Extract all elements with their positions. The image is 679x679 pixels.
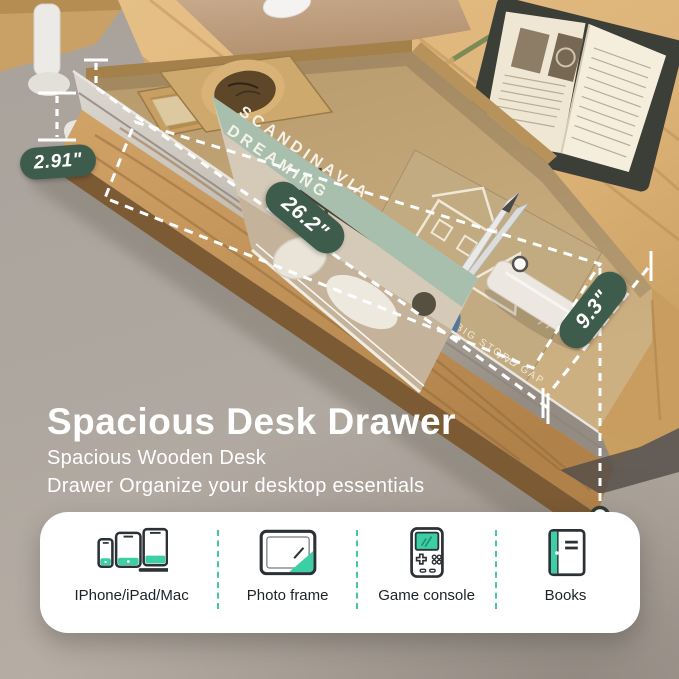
- feature-books-label: Books: [545, 587, 587, 604]
- headline-block: Spacious Desk Drawer Spacious Wooden Des…: [47, 402, 456, 499]
- game-console-icon: [398, 524, 456, 582]
- height-measurement-badge: 2.91": [19, 143, 97, 180]
- feature-game-console-label: Game console: [378, 587, 475, 604]
- feature-devices: IPhone/iPad/Mac: [46, 524, 217, 623]
- books-icon: [537, 524, 595, 582]
- feature-photo-frame: Photo frame: [219, 524, 356, 623]
- subtitle-line-2: Drawer Organize your desktop essentials: [47, 473, 456, 499]
- subtitle-line-1: Spacious Wooden Desk: [47, 445, 456, 471]
- feature-photo-frame-label: Photo frame: [247, 587, 329, 604]
- product-infographic: TO BIG STORE GAP: [0, 0, 679, 679]
- devices-icon: [96, 524, 168, 582]
- feature-card: IPhone/iPad/Mac Photo frame: [40, 512, 640, 633]
- feature-devices-label: IPhone/iPad/Mac: [74, 587, 188, 604]
- point-marker: [513, 257, 527, 271]
- page-title: Spacious Desk Drawer: [47, 402, 456, 443]
- photo-frame-icon: [255, 524, 321, 582]
- feature-game-console: Game console: [358, 524, 495, 623]
- feature-books: Books: [497, 524, 634, 623]
